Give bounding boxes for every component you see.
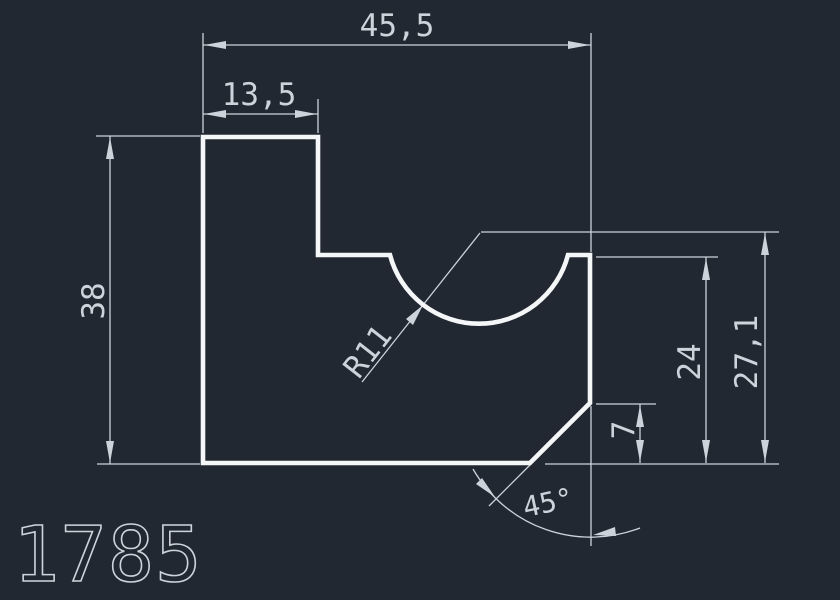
arrowhead-angle-right-icon <box>593 527 616 536</box>
arrowhead-top-icon <box>702 258 710 280</box>
dimension-step-width[interactable]: 13,5 <box>203 77 318 133</box>
part-outline[interactable] <box>203 137 590 463</box>
dimension-total-height[interactable]: 38 <box>76 136 200 464</box>
arrowhead-top-icon <box>761 233 769 255</box>
arrowhead-radius-icon <box>406 305 423 325</box>
dimension-total-height-label: 38 <box>76 282 112 319</box>
dimension-total-width-label: 45,5 <box>360 8 435 44</box>
dimension-total-width[interactable]: 45,5 <box>203 8 591 252</box>
dimension-chamfer-height-label: 7 <box>606 421 642 440</box>
arrowhead-angle-left-icon <box>476 478 495 497</box>
dimension-chamfer-angle-label: 45° <box>520 481 576 524</box>
part-number-label: 1785 <box>13 511 202 600</box>
arrowhead-bottom-icon <box>702 440 710 462</box>
dimension-step-width-label: 13,5 <box>222 77 297 113</box>
dimension-notch-radius-label: R11 <box>337 319 400 385</box>
cad-drawing-viewport[interactable]: 45,5 13,5 38 24 <box>0 0 840 600</box>
arrowhead-right-icon <box>295 110 317 118</box>
dimension-center-height-label: 27,1 <box>729 315 765 390</box>
arrowhead-right-icon <box>568 41 590 49</box>
dimension-shoulder-height-label: 24 <box>672 343 708 380</box>
arrowhead-bottom-icon <box>106 441 114 463</box>
arrowhead-bottom-icon <box>636 440 644 462</box>
dimension-chamfer-height[interactable]: 7 <box>596 404 656 463</box>
arrowhead-bottom-icon <box>761 440 769 462</box>
arrowhead-left-icon <box>204 41 226 49</box>
arrowhead-top-icon <box>106 137 114 159</box>
cad-drawing-canvas: 45,5 13,5 38 24 <box>0 0 840 600</box>
